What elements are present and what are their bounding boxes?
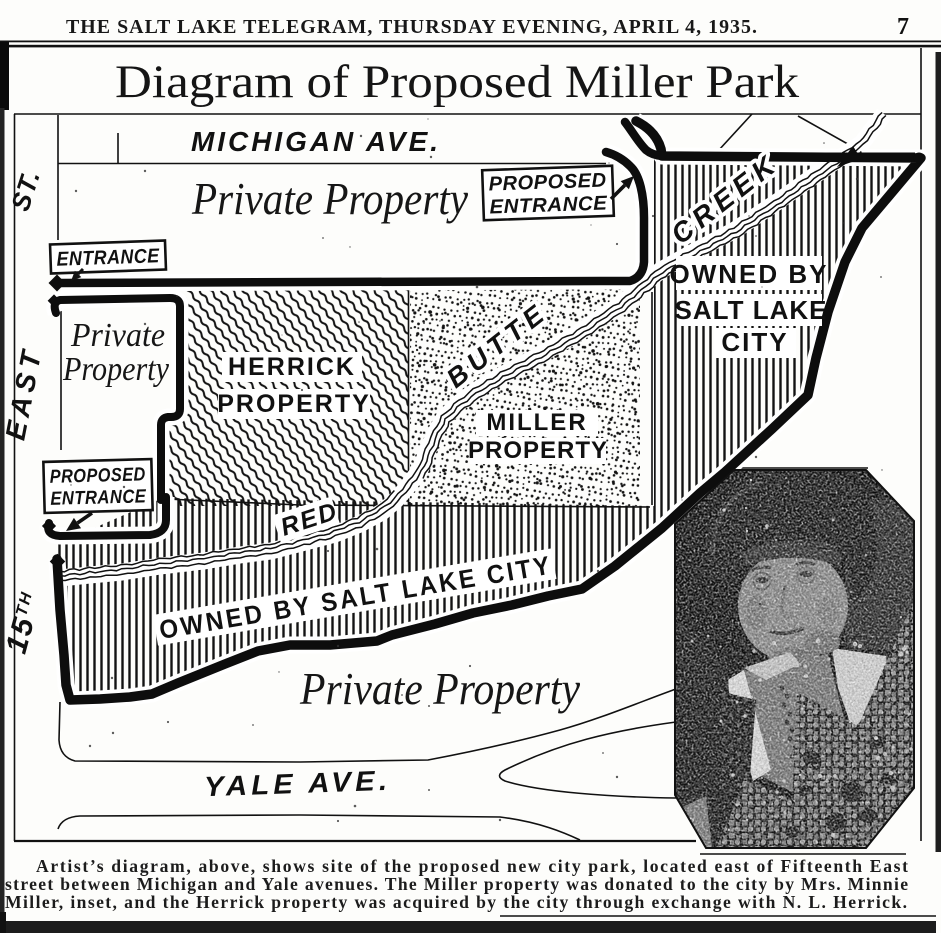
svg-text:MICHIGAN AVE.: MICHIGAN AVE. [191,126,441,157]
svg-text:Private Property: Private Property [191,173,468,224]
svg-text:ENTRANCE: ENTRANCE [489,192,608,218]
svg-text:street between Michigan and Ya: street between Michigan and Yale avenues… [5,874,908,894]
svg-text:CITY: CITY [721,327,788,357]
svg-text:PROPOSED: PROPOSED [488,169,607,195]
svg-text:SALT LAKE: SALT LAKE [675,295,828,325]
svg-text:ENTRANCE: ENTRANCE [56,245,160,271]
svg-text:Private: Private [70,317,165,354]
svg-text:MILLER: MILLER [486,409,587,436]
svg-text:YALE AVE.: YALE AVE. [204,765,392,803]
svg-text:PROPOSED: PROPOSED [49,464,146,488]
svg-text:Miller, inset, and the Herrick: Miller, inset, and the Herrick property … [5,892,907,912]
svg-text:Private Property: Private Property [299,663,580,714]
svg-text:Property: Property [62,351,170,388]
svg-text:Artist’s diagram, above, shows: Artist’s diagram, above, shows site of t… [36,856,908,876]
svg-text:PROPERTY: PROPERTY [217,390,371,418]
svg-text:Diagram of Proposed Miller Par: Diagram of Proposed Miller Park [115,56,800,108]
svg-text:PROPERTY: PROPERTY [468,437,608,464]
svg-text:OWNED BY: OWNED BY [670,259,829,289]
svg-text:HERRICK: HERRICK [228,353,356,381]
svg-text:7: 7 [897,14,909,40]
svg-text:ENTRANCE: ENTRANCE [50,486,147,510]
svg-text:THE SALT LAKE TELEGRAM, THURSD: THE SALT LAKE TELEGRAM, THURSDAY EVENING… [66,17,758,38]
